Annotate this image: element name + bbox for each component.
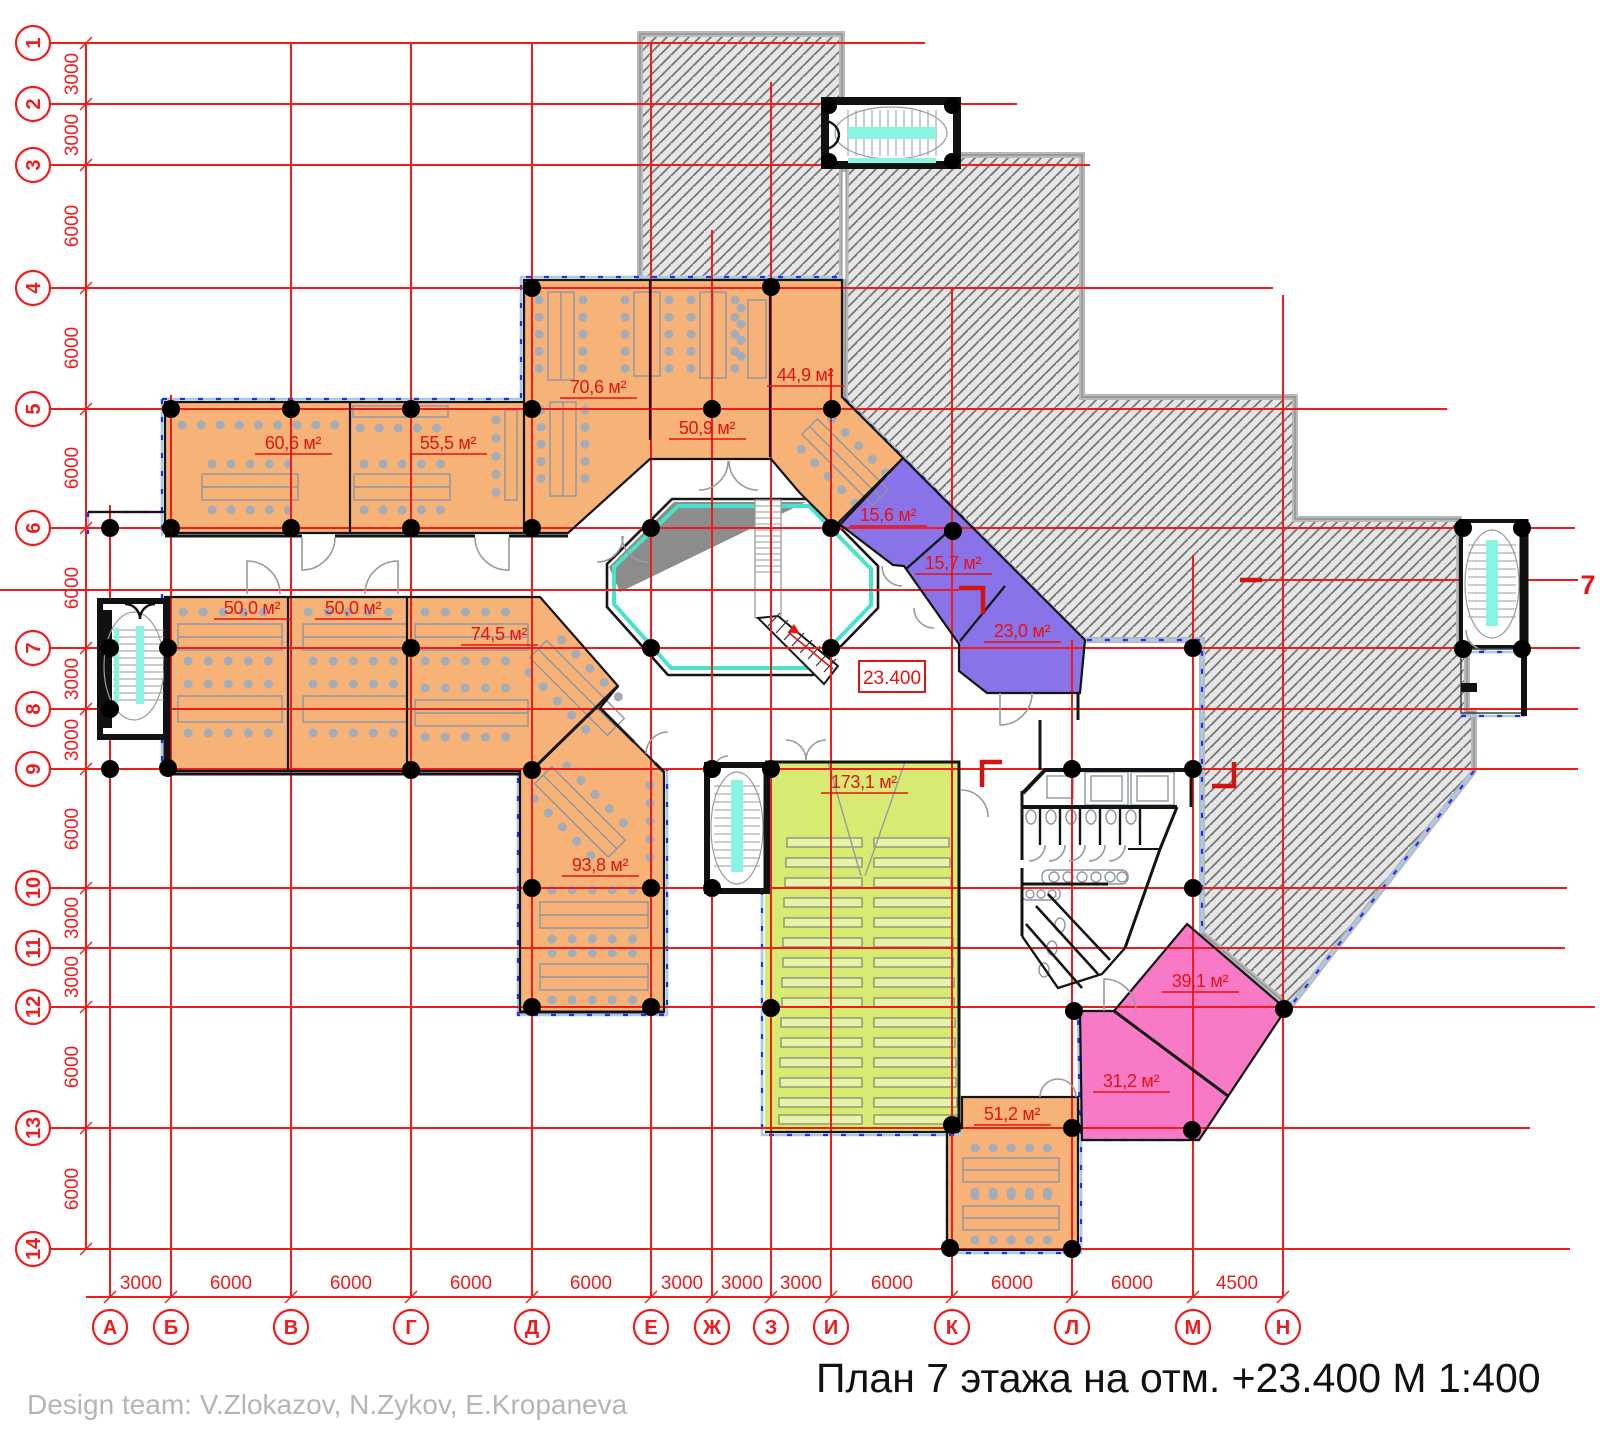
svg-text:Д: Д [525,1317,539,1339]
svg-text:М: М [1185,1317,1202,1339]
svg-text:Л: Л [1065,1317,1079,1339]
svg-text:6000: 6000 [570,1273,612,1294]
svg-text:3000: 3000 [780,1273,822,1294]
svg-text:70,6 м²: 70,6 м² [570,377,627,397]
svg-text:51,2 м²: 51,2 м² [984,1104,1041,1124]
svg-text:3000: 3000 [120,1273,162,1294]
svg-text:3000: 3000 [62,658,83,700]
svg-text:6: 6 [23,522,45,533]
svg-text:3000: 3000 [721,1273,763,1294]
svg-text:50,0 м²: 50,0 м² [224,598,281,618]
svg-text:Г: Г [405,1317,416,1339]
svg-text:4: 4 [23,282,45,294]
svg-text:6000: 6000 [62,327,83,369]
svg-text:6000: 6000 [991,1273,1033,1294]
svg-text:50,9 м²: 50,9 м² [679,418,736,438]
svg-text:Design team: V.Zlokazov, N.Zyk: Design team: V.Zlokazov, N.Zykov, E.Krop… [27,1389,628,1420]
svg-text:В: В [284,1317,298,1339]
svg-text:5: 5 [23,403,45,414]
svg-text:7: 7 [23,642,45,653]
svg-text:Н: Н [1276,1317,1290,1339]
svg-text:10: 10 [23,877,45,899]
svg-text:31,2 м²: 31,2 м² [1103,1071,1160,1091]
svg-text:39,1 м²: 39,1 м² [1172,971,1229,991]
svg-text:60,6 м²: 60,6 м² [265,433,322,453]
svg-text:К: К [946,1317,959,1339]
svg-text:3000: 3000 [62,897,83,939]
svg-text:13: 13 [23,1117,45,1139]
svg-text:3: 3 [23,159,45,170]
svg-text:3000: 3000 [62,53,83,95]
svg-text:Ж: Ж [702,1317,722,1339]
svg-text:173,1 м²: 173,1 м² [831,772,897,792]
svg-text:14: 14 [23,1237,45,1260]
svg-text:44,9 м²: 44,9 м² [777,365,834,385]
svg-text:23,0 м²: 23,0 м² [994,621,1051,641]
svg-text:8: 8 [23,703,45,714]
svg-text:3000: 3000 [62,956,83,998]
svg-text:74,5 м²: 74,5 м² [471,624,528,644]
svg-text:1: 1 [23,37,45,48]
svg-text:6000: 6000 [450,1273,492,1294]
svg-text:6000: 6000 [210,1273,252,1294]
svg-text:93,8 м²: 93,8 м² [572,855,629,875]
svg-text:Е: Е [644,1317,657,1339]
svg-text:11: 11 [23,937,45,958]
svg-text:6000: 6000 [62,205,83,247]
svg-text:6000: 6000 [62,808,83,850]
svg-text:Б: Б [164,1317,178,1339]
svg-text:9: 9 [23,763,45,774]
svg-text:6000: 6000 [62,1168,83,1210]
svg-text:А: А [103,1317,117,1339]
svg-text:6000: 6000 [330,1273,372,1294]
svg-text:И: И [824,1317,838,1339]
svg-text:12: 12 [23,996,45,1018]
svg-text:3000: 3000 [62,719,83,761]
svg-text:7: 7 [1580,570,1595,600]
svg-text:6000: 6000 [1111,1273,1153,1294]
svg-text:План 7 этажа на отм. +23.400 М: План 7 этажа на отм. +23.400 М 1:400 [816,1355,1541,1401]
svg-text:3000: 3000 [661,1273,703,1294]
svg-text:15,6 м²: 15,6 м² [860,505,917,525]
svg-text:З: З [765,1317,778,1339]
svg-text:6000: 6000 [62,1046,83,1088]
svg-text:3000: 3000 [62,114,83,156]
svg-text:2: 2 [23,98,45,109]
svg-text:50,0 м²: 50,0 м² [325,598,382,618]
svg-text:6000: 6000 [62,447,83,489]
svg-text:55,5 м²: 55,5 м² [420,433,477,453]
svg-text:15,7 м²: 15,7 м² [925,553,982,573]
svg-text:6000: 6000 [62,567,83,609]
svg-text:23.400: 23.400 [863,668,921,689]
svg-text:4500: 4500 [1216,1273,1258,1294]
svg-text:6000: 6000 [871,1273,913,1294]
